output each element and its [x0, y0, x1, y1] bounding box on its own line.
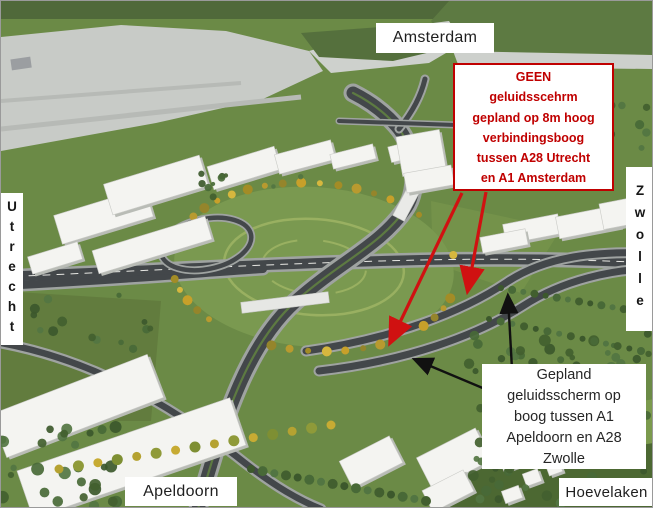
label-apeldoorn-text: Apeldoorn — [143, 483, 219, 501]
annotation-no-sound-screen: GEEN geluidsscehrm gepland op 8m hoog ve… — [453, 63, 614, 191]
label-hoevelaken: Hoevelaken — [559, 478, 653, 506]
red-arrow-2 — [468, 192, 486, 289]
label-apeldoorn: Apeldoorn — [125, 477, 237, 506]
red-arrow-1 — [391, 193, 462, 341]
interchange-annotated-render: Amsterdam Utrecht Zwolle Apeldoorn Hoeve… — [0, 0, 653, 508]
annotation-planned-sound-screen: Gepland geluidsscherm op boog tussen A1 … — [482, 364, 646, 469]
label-utrecht-text: Utrecht — [5, 199, 20, 339]
black-arrow-2 — [416, 360, 485, 389]
label-zwolle: Zwolle — [626, 167, 653, 331]
black-arrow-1 — [508, 297, 512, 369]
label-amsterdam: Amsterdam — [376, 23, 494, 53]
label-zwolle-text: Zwolle — [633, 183, 648, 315]
label-amsterdam-text: Amsterdam — [393, 29, 478, 47]
label-utrecht: Utrecht — [1, 193, 23, 345]
label-hoevelaken-text: Hoevelaken — [565, 484, 647, 501]
